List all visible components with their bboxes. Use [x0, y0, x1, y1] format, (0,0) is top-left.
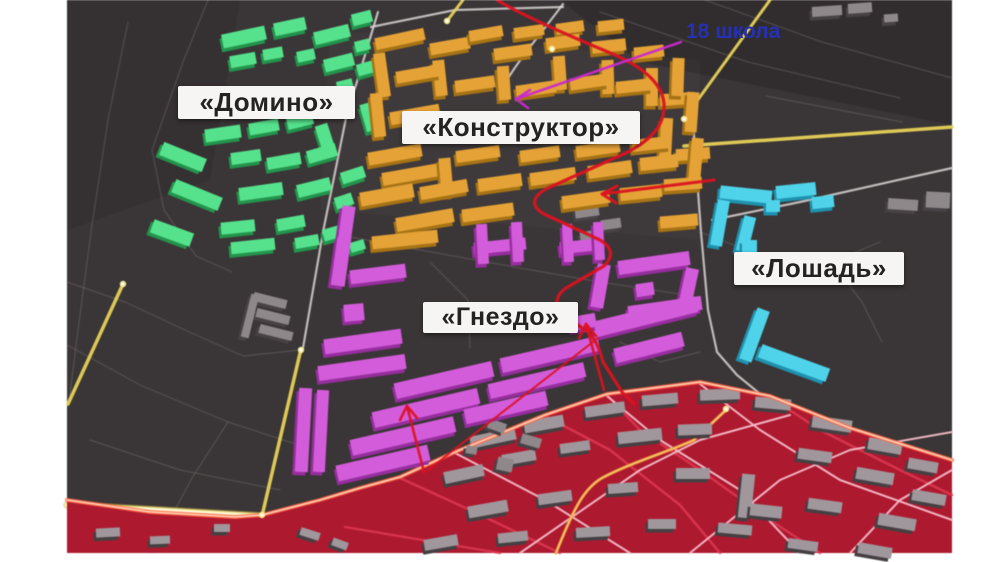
school-annotation: 18 школа	[686, 20, 780, 44]
district-label-domino: «Домино»	[178, 86, 355, 119]
district-label-gnezdo: «Гнездо»	[423, 302, 578, 333]
map-screenshot: «Домино» «Конструктор» «Гнездо» «Лошадь»…	[0, 0, 1000, 562]
district-label-konstruktor: «Конструктор»	[402, 111, 640, 144]
district-label-loshad: «Лошадь»	[734, 252, 904, 285]
